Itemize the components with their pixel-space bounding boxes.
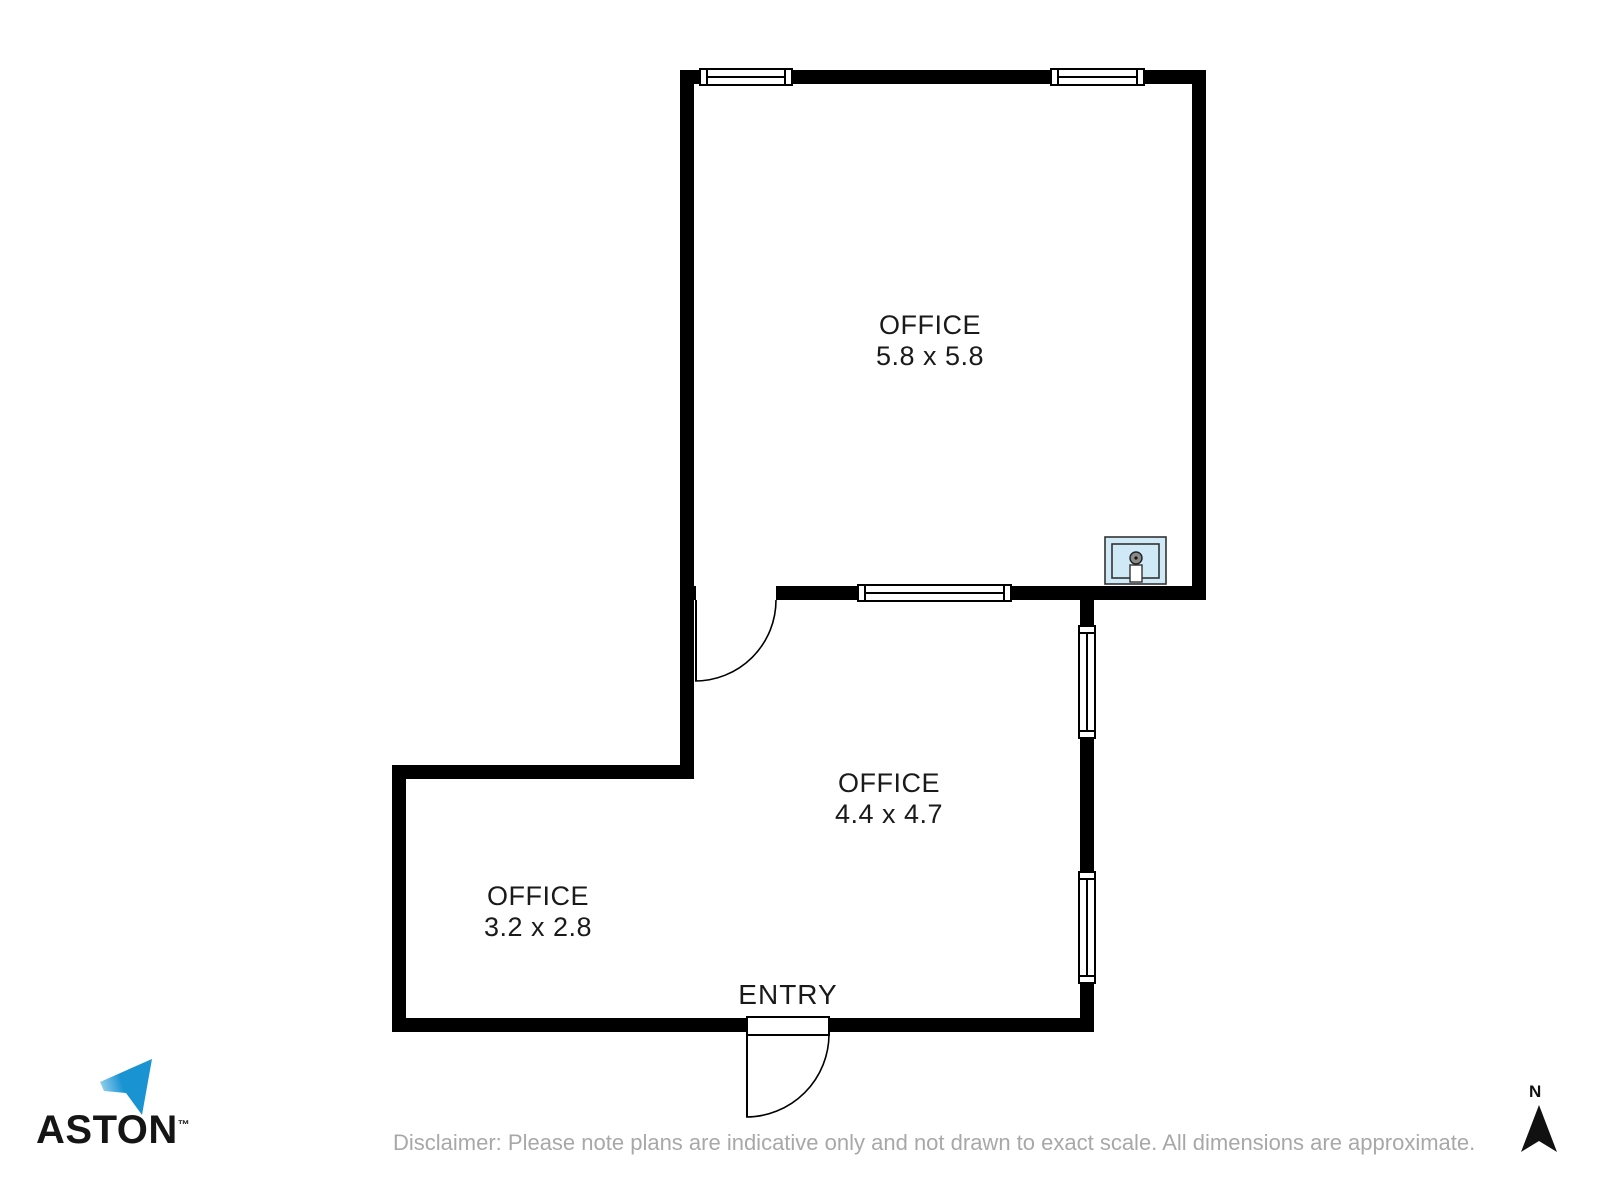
window-top-right — [1050, 68, 1145, 86]
wall-left — [680, 70, 694, 779]
north-arrow-icon — [1512, 1102, 1560, 1158]
room-label-office-2: OFFICE 4.4 x 4.7 — [789, 768, 989, 830]
room-label-office-3: OFFICE 3.2 x 2.8 — [438, 881, 638, 943]
wall-right-mid-seg1 — [1080, 600, 1094, 627]
entry-door-leaf — [746, 1016, 830, 1036]
wall-right-mid-seg2 — [1080, 737, 1094, 873]
wall-mid-seg1 — [680, 586, 696, 600]
room-dims: 3.2 x 2.8 — [438, 912, 638, 943]
window-right-lower — [1078, 871, 1096, 984]
entry-door-icon — [746, 1034, 832, 1120]
sink-icon — [1104, 536, 1168, 586]
logo-word: ASTON — [36, 1108, 178, 1152]
window-top-left — [699, 68, 793, 86]
wall-top-seg2 — [793, 70, 1050, 84]
wall-step — [392, 765, 694, 779]
wall-bottom-seg2 — [830, 1018, 1094, 1032]
wall-left-lower — [392, 765, 406, 1032]
entry-label: ENTRY — [688, 979, 888, 1010]
north-indicator: N — [1505, 1080, 1575, 1160]
room-name: OFFICE — [789, 768, 989, 799]
trademark: ™ — [178, 1118, 191, 1132]
room-dims: 4.4 x 4.7 — [789, 799, 989, 830]
aston-logo-text: ASTON™ — [36, 1108, 190, 1153]
window-mid-wall — [857, 584, 1012, 602]
disclaimer-text: Disclaimer: Please note plans are indica… — [393, 1131, 1475, 1155]
wall-bottom-seg1 — [392, 1018, 746, 1032]
interior-door-icon — [695, 600, 779, 686]
aston-logo: ASTON™ — [30, 1050, 230, 1160]
wall-mid-seg3 — [1012, 586, 1206, 600]
wall-right-mid-seg3 — [1080, 982, 1094, 1032]
room-name: OFFICE — [438, 881, 638, 912]
wall-mid-seg2 — [776, 586, 857, 600]
room-dims: 5.8 x 5.8 — [830, 341, 1030, 372]
wall-right-top-office — [1192, 70, 1206, 600]
north-label: N — [1529, 1082, 1541, 1102]
window-right-upper — [1078, 625, 1096, 739]
room-name: OFFICE — [830, 310, 1030, 341]
room-label-office-1: OFFICE 5.8 x 5.8 — [830, 310, 1030, 372]
floor-plan: OFFICE 5.8 x 5.8 OFFICE 4.4 x 4.7 OFFICE… — [0, 0, 1600, 1190]
